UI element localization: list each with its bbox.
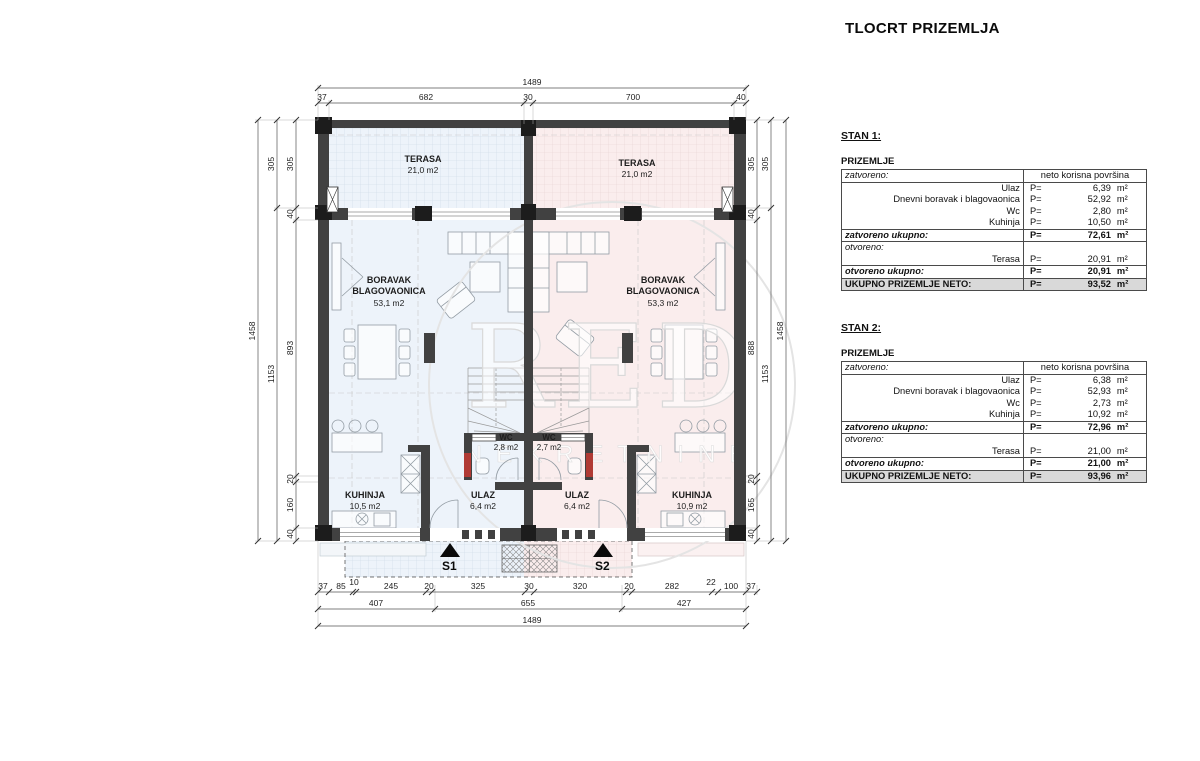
row-p: P=: [1023, 206, 1060, 218]
room-boravak-right-area: 53,3 m2: [648, 298, 679, 308]
dim-left-inner-1: 40: [285, 209, 295, 219]
total-label: otvoreno ukupno:: [842, 458, 1024, 471]
chimney-left: [424, 333, 435, 363]
chimney-right: [622, 333, 633, 363]
dim-left-mid-0: 305: [266, 157, 276, 171]
back-path-left: [320, 543, 426, 556]
row-value: 6,39: [1060, 182, 1114, 194]
room-wc-right: WC: [542, 433, 556, 442]
table-row: Wc P= 2,73 m²: [842, 398, 1147, 410]
row-unit: m²: [1114, 217, 1147, 229]
room-terasa-left: TERASA: [404, 154, 442, 164]
dim-right-inner-0: 305: [746, 157, 756, 171]
dim-top-3: 700: [626, 92, 640, 102]
total-p: P=: [1023, 458, 1060, 471]
dim-bottom1-4: 20: [424, 581, 434, 591]
dim-bottom1-6: 30: [524, 581, 534, 591]
row-value: 2,73: [1060, 398, 1114, 410]
room-wc-left: WC: [499, 433, 513, 442]
dim-bottom2-0: 407: [369, 598, 383, 608]
row-label: Wc: [842, 206, 1024, 218]
dim-top-total: 1489: [523, 77, 542, 87]
total-value: 72,61: [1060, 229, 1114, 242]
table-row: Wc P= 2,80 m²: [842, 206, 1147, 218]
wc-right-jamb: [586, 453, 593, 477]
open-total-row: otvoreno ukupno: P= 21,00 m²: [842, 458, 1147, 471]
floor-plan-drawing: RED NEKRETNINE: [0, 0, 840, 700]
stan1-title: STAN 1:: [841, 130, 1147, 142]
stan1-block: STAN 1: PRIZEMLJE zatvoreno: neto korisn…: [841, 130, 1147, 291]
open-label: otvoreno:: [842, 242, 1024, 254]
marker-s1-label: S1: [442, 559, 457, 573]
row-p: P=: [1023, 409, 1060, 421]
room-boravak-left-1: BORAVAK: [367, 275, 412, 285]
dining-table-left: [358, 325, 396, 379]
table-row: Terasa P= 21,00 m²: [842, 446, 1147, 458]
dim-left-inner-3: 20: [285, 474, 295, 484]
dim-right-mid-0: 305: [760, 157, 770, 171]
dim-right-inner-3: 20: [746, 474, 756, 484]
row-label: Dnevni boravak i blagovaonica: [842, 386, 1024, 398]
open-section-row: otvoreno:: [842, 434, 1147, 446]
dim-right-total: 1458: [775, 321, 785, 340]
grand-label: UKUPNO PRIZEMLJE NETO:: [842, 278, 1024, 291]
row-unit: m²: [1114, 386, 1147, 398]
dim-bottom1-0: 37: [318, 581, 328, 591]
watermark-logo-text: RED: [466, 301, 759, 435]
row-label: Dnevni boravak i blagovaonica: [842, 194, 1024, 206]
row-p: P=: [1023, 194, 1060, 206]
dim-top-4: 40: [736, 92, 746, 102]
room-wc-left-area: 2,8 m2: [494, 443, 519, 452]
table-row: Ulaz P= 6,39 m²: [842, 182, 1147, 194]
stan2-area-table: zatvoreno: neto korisna površina Ulaz P=…: [841, 361, 1147, 483]
total-label: otvoreno ukupno:: [842, 266, 1024, 279]
room-ulaz-left: ULAZ: [471, 490, 495, 500]
dim-left-total: 1458: [247, 321, 257, 340]
terrace-column-left: [327, 187, 338, 212]
terrace-right-tiles: [533, 128, 734, 208]
room-boravak-left-area: 53,1 m2: [374, 298, 405, 308]
row-value: 10,92: [1060, 409, 1114, 421]
row-unit: m²: [1114, 374, 1147, 386]
row-label: Wc: [842, 398, 1024, 410]
row-value: 10,50: [1060, 217, 1114, 229]
kitchen-island-left: [332, 433, 382, 452]
row-label: Terasa: [842, 446, 1024, 458]
dim-right-inner-4: 165: [746, 498, 756, 512]
marker-s2-label: S2: [595, 559, 610, 573]
wc-left-jamb: [464, 453, 471, 477]
open-section-row: otvoreno:: [842, 242, 1147, 254]
grand-total-row: UKUPNO PRIZEMLJE NETO: P= 93,96 m²: [842, 470, 1147, 483]
total-label: zatvoreno ukupno:: [842, 229, 1024, 242]
room-ulaz-right: ULAZ: [565, 490, 589, 500]
grand-unit: m²: [1114, 278, 1147, 291]
row-unit: m²: [1114, 398, 1147, 410]
total-p: P=: [1023, 229, 1060, 242]
table-row: Dnevni boravak i blagovaonica P= 52,92 m…: [842, 194, 1147, 206]
stan2-floor-label: PRIZEMLJE: [841, 348, 1147, 359]
row-unit: m²: [1114, 194, 1147, 206]
coffee-table-right: [557, 262, 587, 292]
row-label: Ulaz: [842, 182, 1024, 194]
table-row: Dnevni boravak i blagovaonica P= 52,93 m…: [842, 386, 1147, 398]
room-kuhinja-right: KUHINJA: [672, 490, 713, 500]
closed-total-row: zatvoreno ukupno: P= 72,61 m²: [842, 229, 1147, 242]
closed-label: zatvoreno:: [842, 362, 1024, 375]
tv-cabinet-right: [716, 243, 725, 310]
total-unit: m²: [1114, 229, 1147, 242]
dim-left-inner-2: 893: [285, 341, 295, 355]
dim-top-1: 682: [419, 92, 433, 102]
room-boravak-right-2: BLAGOVAONICA: [626, 286, 700, 296]
row-p: P=: [1023, 446, 1060, 458]
grand-p: P=: [1023, 278, 1060, 291]
dim-top-2: 30: [523, 92, 533, 102]
row-label: Kuhinja: [842, 217, 1024, 229]
page: RED NEKRETNINE: [0, 0, 1200, 761]
grand-label: UKUPNO PRIZEMLJE NETO:: [842, 470, 1024, 483]
table-header: neto korisna površina: [1023, 362, 1146, 375]
room-wc-right-area: 2,7 m2: [537, 443, 562, 452]
dim-bottom1-2: 10: [349, 577, 359, 587]
stan1-floor-label: PRIZEMLJE: [841, 156, 1147, 167]
row-label: Ulaz: [842, 374, 1024, 386]
dim-right-inner-5: 40: [746, 529, 756, 539]
total-p: P=: [1023, 266, 1060, 279]
row-label: Kuhinja: [842, 409, 1024, 421]
dim-bottom1-3: 245: [384, 581, 398, 591]
dim-bottom1-9: 282: [665, 581, 679, 591]
row-value: 52,92: [1060, 194, 1114, 206]
row-value: 52,93: [1060, 386, 1114, 398]
party-wall: [524, 120, 533, 541]
row-label: Terasa: [842, 254, 1024, 266]
dim-top-0: 37: [317, 92, 327, 102]
row-p: P=: [1023, 182, 1060, 194]
grand-unit: m²: [1114, 470, 1147, 483]
row-unit: m²: [1114, 182, 1147, 194]
dim-bottom2-1: 655: [521, 598, 535, 608]
dim-left-inner-4: 160: [285, 498, 295, 512]
table-row: Kuhinja P= 10,50 m²: [842, 217, 1147, 229]
row-unit: m²: [1114, 206, 1147, 218]
row-p: P=: [1023, 217, 1060, 229]
dim-bottom2-2: 427: [677, 598, 691, 608]
open-label: otvoreno:: [842, 434, 1024, 446]
grand-value: 93,96: [1060, 470, 1114, 483]
row-value: 20,91: [1060, 254, 1114, 266]
row-p: P=: [1023, 254, 1060, 266]
table-row: Kuhinja P= 10,92 m²: [842, 409, 1147, 421]
closed-label: zatvoreno:: [842, 170, 1024, 183]
room-kuhinja-left-area: 10,5 m2: [350, 501, 381, 511]
table-header: neto korisna površina: [1023, 170, 1146, 183]
table-row: Ulaz P= 6,38 m²: [842, 374, 1147, 386]
dim-bottom1-11: 100: [724, 581, 738, 591]
room-boravak-right-1: BORAVAK: [641, 275, 686, 285]
open-total-row: otvoreno ukupno: P= 20,91 m²: [842, 266, 1147, 279]
room-ulaz-right-area: 6,4 m2: [564, 501, 590, 511]
total-value: 72,96: [1060, 421, 1114, 434]
grand-total-row: UKUPNO PRIZEMLJE NETO: P= 93,52 m²: [842, 278, 1147, 291]
room-boravak-left-2: BLAGOVAONICA: [352, 286, 426, 296]
room-kuhinja-right-area: 10,9 m2: [677, 501, 708, 511]
room-terasa-right: TERASA: [618, 158, 656, 168]
table-row: Terasa P= 20,91 m²: [842, 254, 1147, 266]
dim-bottom-total: 1489: [523, 615, 542, 625]
tv-cabinet-left: [332, 243, 341, 310]
total-unit: m²: [1114, 458, 1147, 471]
row-value: 2,80: [1060, 206, 1114, 218]
row-value: 21,00: [1060, 446, 1114, 458]
dim-right-mid-1: 1153: [760, 365, 770, 384]
terrace-column-right: [722, 187, 733, 212]
dim-right-inner-2: 888: [746, 341, 756, 355]
total-p: P=: [1023, 421, 1060, 434]
coffee-table-left: [470, 262, 500, 292]
row-p: P=: [1023, 386, 1060, 398]
dim-bottom1-10: 22: [706, 577, 716, 587]
room-kuhinja-left: KUHINJA: [345, 490, 386, 500]
total-value: 20,91: [1060, 266, 1114, 279]
row-unit: m²: [1114, 446, 1147, 458]
page-title: TLOCRT PRIZEMLJA: [845, 20, 1000, 37]
dim-bottom1-12: 37: [746, 581, 756, 591]
row-unit: m²: [1114, 409, 1147, 421]
dim-left-inner-0: 305: [285, 157, 295, 171]
dim-bottom1-5: 325: [471, 581, 485, 591]
dim-left-mid-1: 1153: [266, 365, 276, 384]
room-terasa-right-area: 21,0 m2: [622, 169, 653, 179]
stan2-block: STAN 2: PRIZEMLJE zatvoreno: neto korisn…: [841, 322, 1147, 483]
dim-bottom1-1: 85: [336, 581, 346, 591]
room-terasa-left-area: 21,0 m2: [408, 165, 439, 175]
row-unit: m²: [1114, 254, 1147, 266]
row-p: P=: [1023, 398, 1060, 410]
total-value: 21,00: [1060, 458, 1114, 471]
dim-bottom1-7: 320: [573, 581, 587, 591]
total-unit: m²: [1114, 266, 1147, 279]
stan1-area-table: zatvoreno: neto korisna površina Ulaz P=…: [841, 169, 1147, 291]
closed-total-row: zatvoreno ukupno: P= 72,96 m²: [842, 421, 1147, 434]
total-unit: m²: [1114, 421, 1147, 434]
dim-bottom1-8: 20: [624, 581, 634, 591]
dim-left-inner-5: 40: [285, 529, 295, 539]
room-ulaz-left-area: 6,4 m2: [470, 501, 496, 511]
stan2-title: STAN 2:: [841, 322, 1147, 334]
total-label: zatvoreno ukupno:: [842, 421, 1024, 434]
row-value: 6,38: [1060, 374, 1114, 386]
row-p: P=: [1023, 374, 1060, 386]
grand-value: 93,52: [1060, 278, 1114, 291]
grand-p: P=: [1023, 470, 1060, 483]
dim-right-inner-1: 40: [746, 209, 756, 219]
